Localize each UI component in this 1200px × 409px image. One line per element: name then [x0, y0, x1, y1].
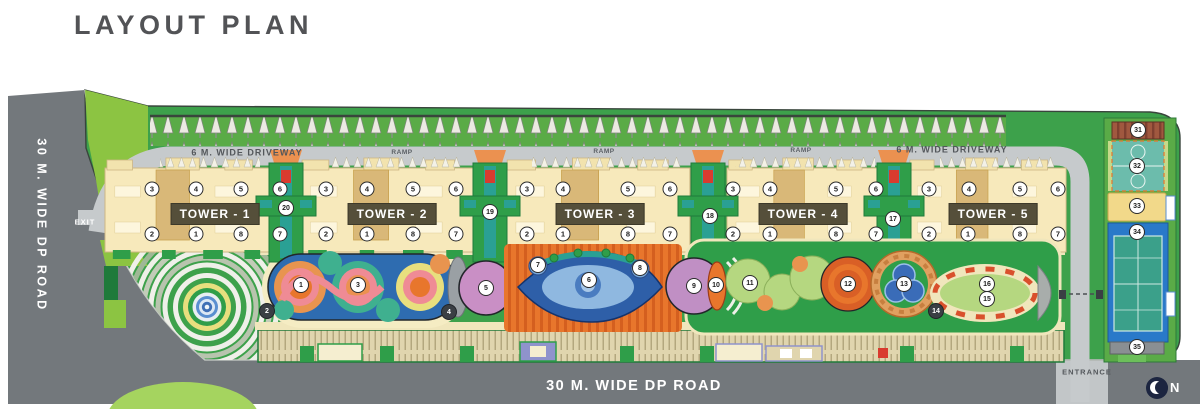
- unit-circle: 8: [621, 227, 636, 242]
- road-label-left: 30 M. WIDE DP ROAD: [35, 138, 48, 311]
- unit-circle: 8: [1013, 227, 1028, 242]
- amenity-marker-11: 11: [742, 275, 758, 291]
- amenity-marker-16: 16: [979, 276, 995, 292]
- amenity-marker-10: 10: [708, 277, 724, 293]
- amenity-marker-5: 5: [478, 280, 494, 296]
- unit-circle: 3: [319, 182, 334, 197]
- amenity-marker-3: 3: [350, 277, 366, 293]
- unit-circle: 4: [556, 182, 571, 197]
- tower-2-plate: TOWER - 2: [348, 203, 437, 225]
- gap-marker-19: 19: [482, 204, 498, 220]
- sports-marker-34: 34: [1129, 224, 1145, 240]
- unit-circle: 7: [273, 227, 288, 242]
- amenity-marker-12: 12: [840, 276, 856, 292]
- gap-marker-17: 17: [885, 211, 901, 227]
- entrance-label: ENTRANCE: [1062, 368, 1112, 376]
- unit-circle: 7: [449, 227, 464, 242]
- unit-circle: 1: [360, 227, 375, 242]
- unit-circle: 6: [1051, 182, 1066, 197]
- driveway-label-right: 6 M. WIDE DRIVEWAY: [896, 146, 1007, 155]
- sports-marker-35: 35: [1129, 339, 1145, 355]
- sports-courts: [1104, 118, 1176, 362]
- amenity-marker-6: 6: [581, 272, 597, 288]
- amenity-marker-4: 4: [441, 304, 457, 320]
- unit-circle: 3: [726, 182, 741, 197]
- amenity-marker-9: 9: [686, 278, 702, 294]
- unit-circle: 6: [869, 182, 884, 197]
- unit-circle: 2: [319, 227, 334, 242]
- unit-circle: 2: [922, 227, 937, 242]
- ramp-label-2: RAMP: [593, 149, 614, 156]
- driveway-label-left: 6 M. WIDE DRIVEWAY: [191, 149, 302, 158]
- unit-circle: 7: [663, 227, 678, 242]
- ramp-label-3: RAMP: [790, 148, 811, 155]
- unit-circle: 1: [556, 227, 571, 242]
- exit-label: EXIT: [75, 218, 96, 226]
- unit-circle: 7: [869, 227, 884, 242]
- gap-marker-20: 20: [278, 200, 294, 216]
- layout-plan-page: LAYOUT PLAN 30 M. WIDE DP ROAD 30 M. WID…: [0, 0, 1200, 409]
- unit-circle: 3: [520, 182, 535, 197]
- sports-marker-31: 31: [1130, 122, 1146, 138]
- amenity-marker-2: 2: [259, 303, 275, 319]
- ramp-label-1: RAMP: [391, 150, 412, 157]
- unit-circle: 6: [449, 182, 464, 197]
- unit-circle: 1: [763, 227, 778, 242]
- unit-circle: 1: [189, 227, 204, 242]
- unit-circle: 6: [663, 182, 678, 197]
- unit-circle: 4: [360, 182, 375, 197]
- unit-circle: 8: [406, 227, 421, 242]
- unit-circle: 1: [961, 227, 976, 242]
- unit-circle: 4: [189, 182, 204, 197]
- unit-circle: 3: [922, 182, 937, 197]
- amenity-marker-13: 13: [896, 276, 912, 292]
- tower-3-plate: TOWER - 3: [556, 203, 645, 225]
- unit-circle: 5: [621, 182, 636, 197]
- page-title: LAYOUT PLAN: [74, 10, 313, 41]
- tower-1-plate: TOWER - 1: [171, 203, 260, 225]
- unit-circle: 8: [829, 227, 844, 242]
- unit-circle: 5: [406, 182, 421, 197]
- amenity-marker-7: 7: [530, 257, 546, 273]
- sports-marker-32: 32: [1129, 158, 1145, 174]
- amenity-marker-14: 14: [928, 303, 944, 319]
- unit-circle: 4: [763, 182, 778, 197]
- unit-circle: 3: [145, 182, 160, 197]
- amenity-marker-15: 15: [979, 291, 995, 307]
- unit-circle: 8: [234, 227, 249, 242]
- unit-circle: 2: [520, 227, 535, 242]
- unit-circle: 5: [829, 182, 844, 197]
- gap-marker-18: 18: [702, 208, 718, 224]
- swimming-pool: [504, 244, 682, 332]
- unit-circle: 5: [234, 182, 249, 197]
- north-label: N: [1170, 380, 1179, 395]
- unit-circle: 2: [726, 227, 741, 242]
- amenity-marker-8: 8: [632, 260, 648, 276]
- unit-circle: 2: [145, 227, 160, 242]
- road-label-bottom: 30 M. WIDE DP ROAD: [546, 379, 722, 394]
- tower-4-plate: TOWER - 4: [759, 203, 848, 225]
- tree-buffer-strip: [150, 116, 1006, 146]
- unit-circle: 4: [962, 182, 977, 197]
- amenity-marker-1: 1: [293, 277, 309, 293]
- tower-5-plate: TOWER - 5: [949, 203, 1038, 225]
- unit-circle: 5: [1013, 182, 1028, 197]
- sports-marker-33: 33: [1129, 198, 1145, 214]
- spiral-garden: [173, 273, 241, 341]
- east-amenity-panel: [666, 240, 1060, 334]
- north-compass-icon: [1146, 377, 1168, 399]
- unit-circle: 6: [273, 182, 288, 197]
- unit-circle: 7: [1051, 227, 1066, 242]
